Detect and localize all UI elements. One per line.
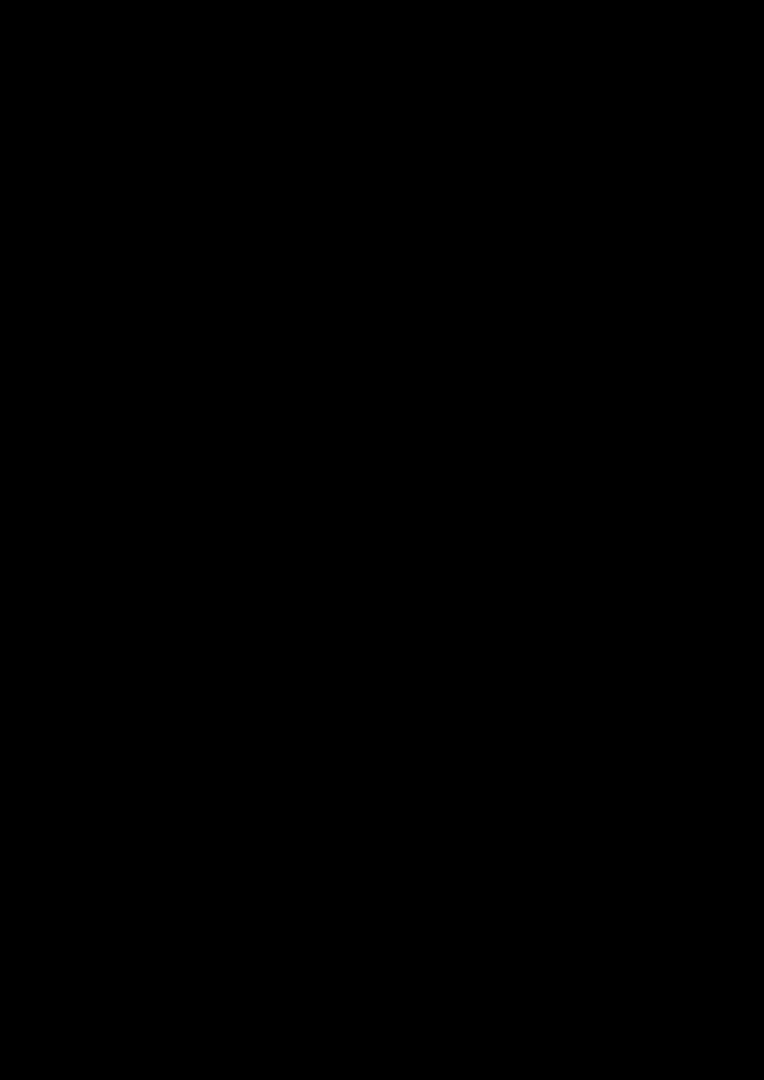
floor-plan-screenshot bbox=[0, 0, 764, 1080]
floor-plan-3d-render bbox=[0, 0, 764, 1080]
